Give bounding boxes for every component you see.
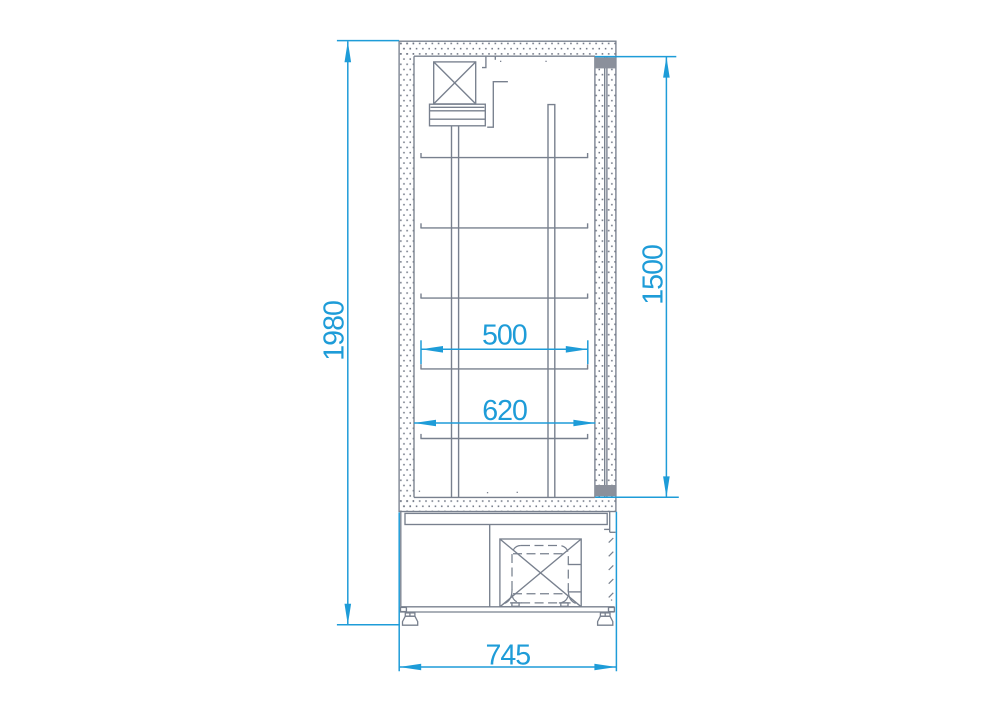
svg-text:745: 745 xyxy=(485,639,530,671)
svg-text:500: 500 xyxy=(482,319,527,351)
svg-text:1980: 1980 xyxy=(319,301,351,361)
svg-text:620: 620 xyxy=(482,395,527,427)
svg-text:1500: 1500 xyxy=(638,245,670,305)
